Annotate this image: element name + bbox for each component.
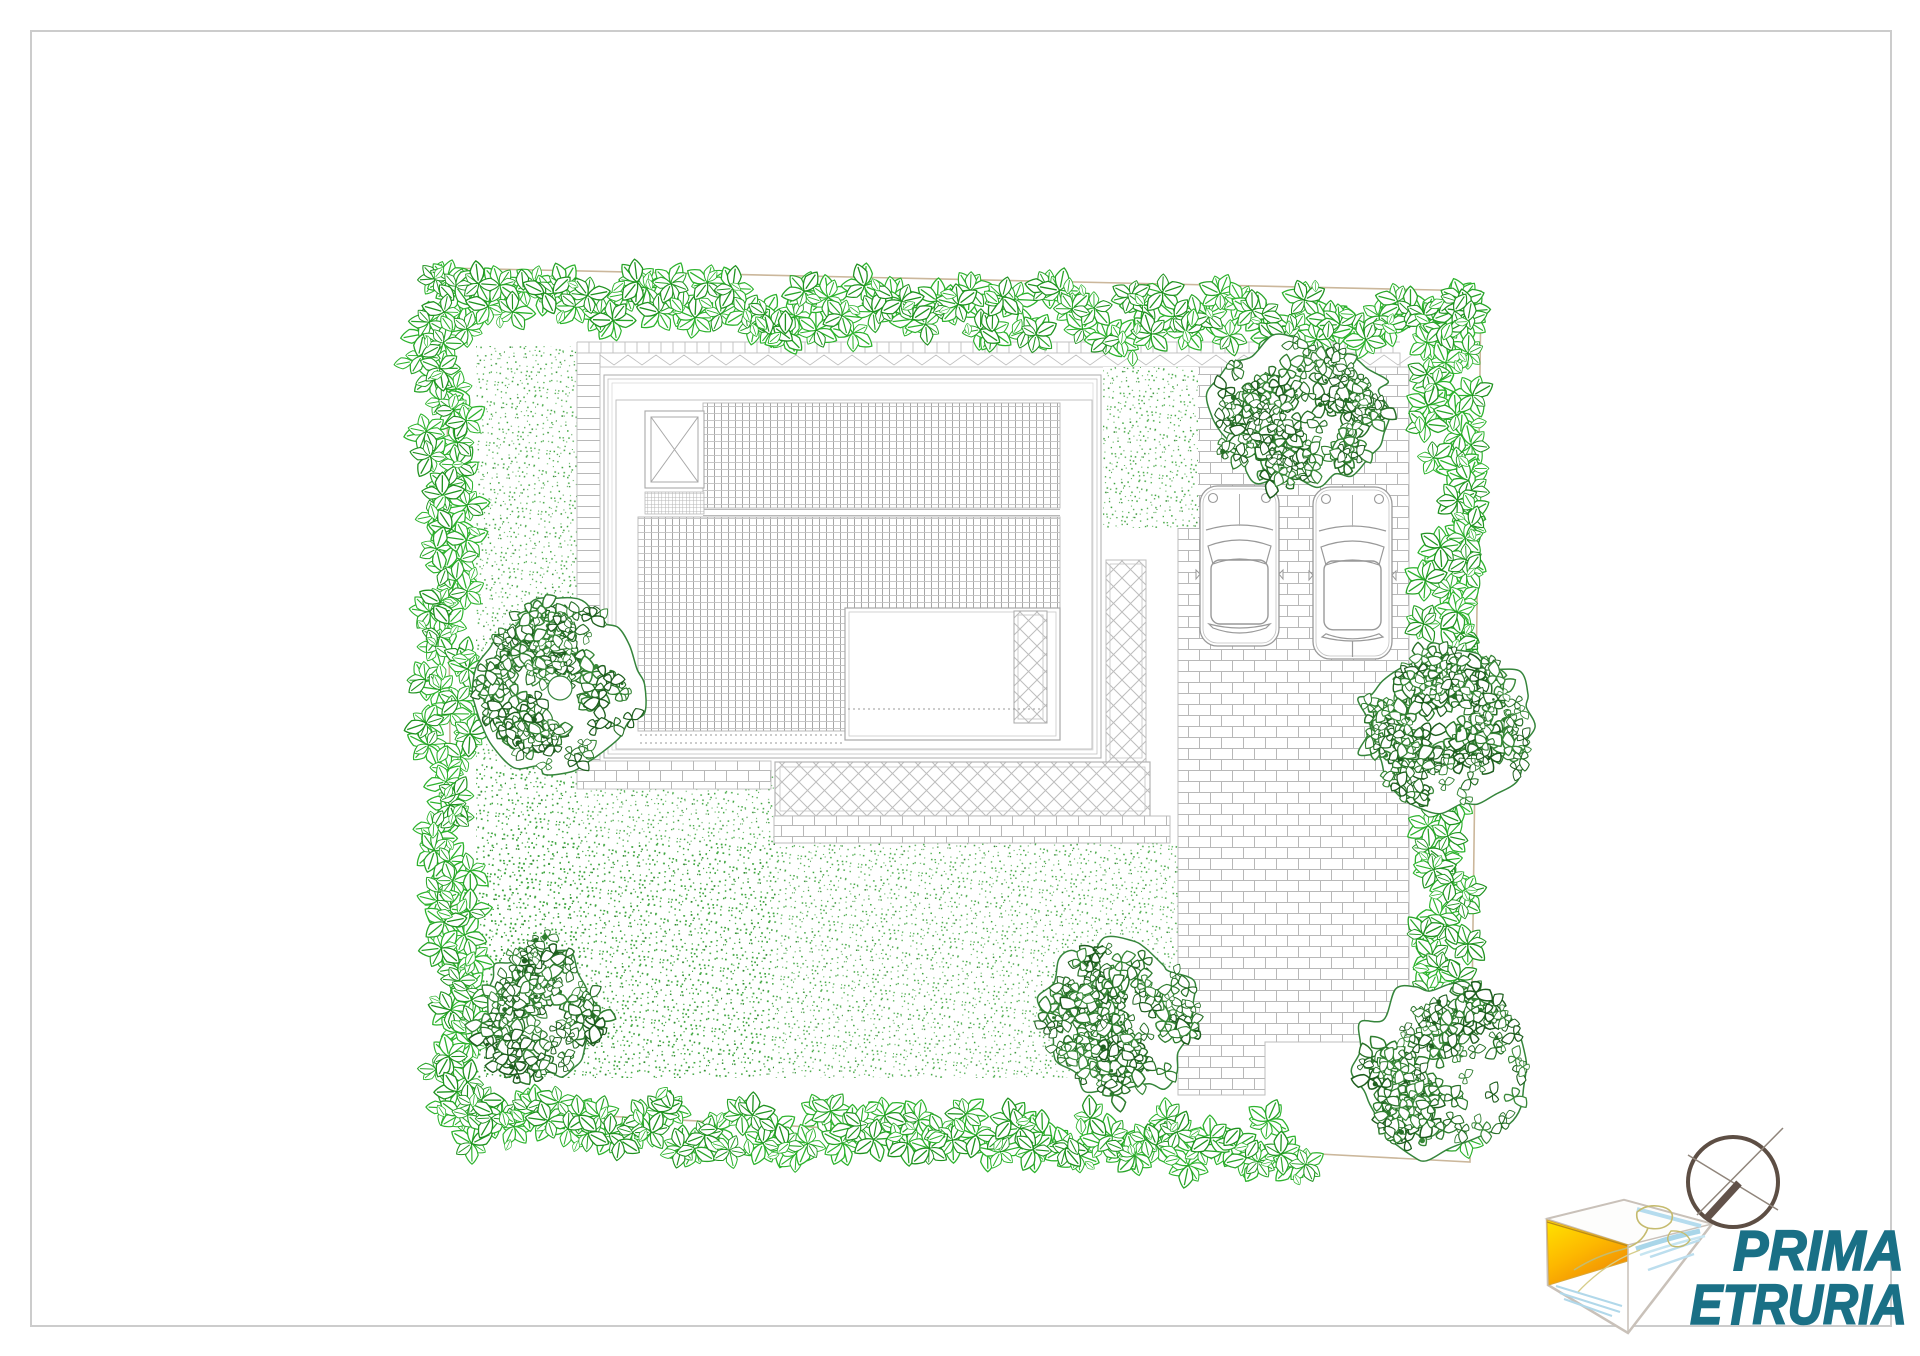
svg-text:ETRURIA: ETRURIA <box>1690 1273 1907 1336</box>
